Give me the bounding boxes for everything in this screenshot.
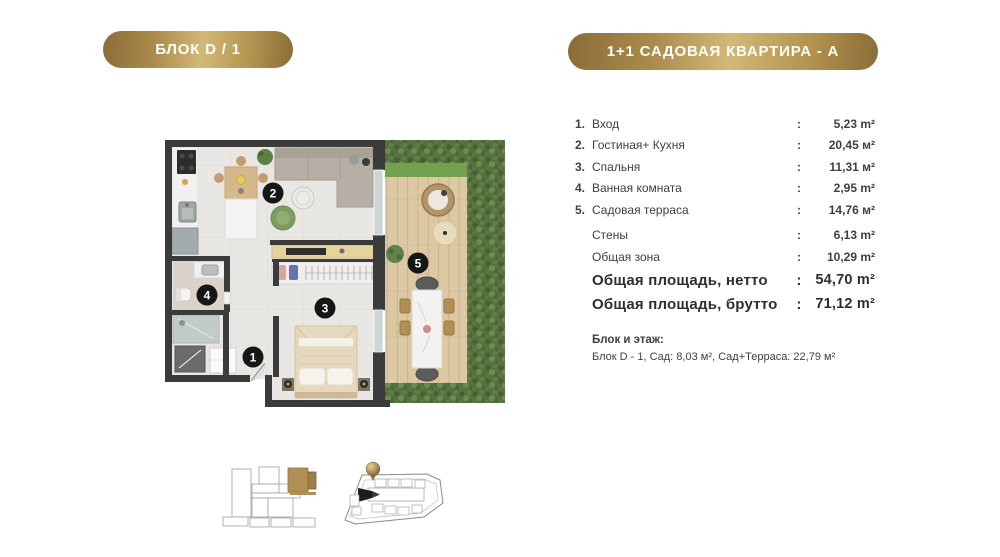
unit-number-badge-3: 3: [315, 298, 336, 319]
bed-sheet-fold: [299, 338, 353, 346]
badge-number: 2: [270, 186, 277, 200]
wall-interior-horizontal: [270, 240, 378, 245]
unit-outline: [252, 498, 268, 517]
sofa-back: [275, 148, 373, 158]
summary-value: 10,29 m²: [805, 250, 875, 264]
hedge-right: [467, 140, 505, 403]
room-number: 4.: [575, 181, 592, 195]
colon-separator: :: [793, 272, 805, 289]
block-floor-detail: Блок D - 1, Сад: 8,03 м², Сад+Терраса: 2…: [592, 351, 835, 363]
colon-separator: :: [793, 160, 805, 174]
badge-number: 5: [415, 256, 422, 270]
badge-number: 3: [322, 301, 329, 315]
coffee-table: [292, 187, 314, 209]
unit-outline: [250, 518, 269, 527]
unit-number-badge-5: 5: [408, 253, 429, 274]
colon-separator: :: [793, 181, 805, 195]
block-floor-info: Блок и этаж: Блок D - 1, Сад: 8,03 м², С…: [592, 334, 835, 363]
island-marble: [225, 199, 257, 239]
bathroom-door: [224, 292, 230, 304]
wall-entrance-bottom: [165, 375, 250, 382]
unit-number-badge-2: 2: [263, 183, 284, 204]
toilet-tank: [176, 288, 181, 301]
site-plan-diagram: [345, 462, 443, 524]
block-badge: БЛОК D / 1: [103, 31, 293, 68]
grass-strip: [385, 163, 467, 177]
hanging-clothes: [289, 265, 298, 280]
room-area-value: 5,23 m²: [805, 117, 875, 131]
room-label: Гостиная+ Кухня: [592, 138, 793, 152]
room-number: 5.: [575, 203, 592, 217]
summary-row-common-zone: Общая зона : 10,29 m²: [575, 246, 875, 268]
faucet: [185, 203, 189, 207]
sofa-item: [362, 158, 370, 166]
room-area-value: 14,76 м²: [805, 203, 875, 217]
apartment-type-badge: 1+1 САДОВАЯ КВАРТИРА - А: [568, 33, 878, 70]
block-badge-label: БЛОК D / 1: [155, 41, 241, 58]
burner: [180, 166, 185, 171]
island-chair: [236, 156, 246, 166]
headboard: [295, 392, 357, 398]
brochure-page: БЛОК D / 1 1+1 САДОВАЯ КВАРТИРА - А 1. В…: [0, 0, 1000, 557]
room-row: 5. Садовая терраса : 14,76 м²: [575, 199, 875, 221]
room-area-list: 1. Вход : 5,23 m² 2. Гостиная+ Кухня : 2…: [575, 113, 875, 221]
apartment-type-label: 1+1 САДОВАЯ КВАРТИРА - А: [607, 43, 839, 60]
summary-value: 54,70 m²: [805, 272, 875, 288]
wall-right-bottom: [373, 352, 385, 407]
badge-number: 1: [250, 350, 257, 364]
wall-bathroom-bottom: [168, 310, 224, 315]
summary-row-walls: Стены : 6,13 m²: [575, 224, 875, 246]
indoor-plant: [257, 149, 273, 165]
wall-top: [165, 140, 385, 147]
summary-label: Общая площадь, нетто: [592, 272, 793, 289]
floor-plan: 1 2 3 4 5: [160, 130, 505, 420]
unit-number-badge-4: 4: [197, 285, 218, 306]
summary-label: Общая площадь, брутто: [592, 296, 793, 313]
terrace-glass-door: [374, 170, 383, 235]
sofa-pillow: [349, 155, 359, 165]
washbasin: [202, 265, 218, 275]
wall-right-top: [373, 140, 385, 170]
colon-separator: :: [793, 203, 805, 217]
console-decor: [340, 249, 345, 254]
badge-number: 4: [204, 288, 211, 302]
tv: [286, 248, 326, 255]
kettle: [182, 179, 188, 185]
unit-outline: [293, 518, 315, 527]
area-summary: Стены : 6,13 m² Общая зона : 10,29 m² Об…: [575, 224, 875, 316]
outdoor-chair: [400, 299, 410, 313]
wall-bedroom-left-upper: [273, 262, 279, 286]
colon-separator: :: [793, 228, 805, 242]
room-area-value: 2,95 m²: [805, 181, 875, 195]
terrace-plant: [386, 245, 404, 263]
locator-diagrams: [222, 455, 457, 545]
block-floor-diagram: [223, 467, 316, 527]
wall-bedroom-bottom: [268, 400, 390, 407]
unit-outline: [223, 517, 248, 526]
outdoor-chair: [444, 299, 454, 313]
room-label: Ванная комната: [592, 181, 793, 195]
room-row: 1. Вход : 5,23 m²: [575, 113, 875, 135]
highlighted-unit: [288, 468, 308, 492]
armchair-cushion: [276, 211, 290, 225]
outdoor-chair: [416, 277, 438, 291]
block-floor-title: Блок и этаж:: [592, 334, 835, 346]
room-row: 2. Гостиная+ Кухня : 20,45 м²: [575, 135, 875, 157]
lounge-chair-pillow: [441, 190, 447, 196]
unit-outline: [268, 498, 293, 517]
colon-separator: :: [793, 296, 805, 313]
side-table-decor: [443, 231, 447, 235]
bedroom-window: [374, 310, 383, 352]
island-chair: [214, 173, 224, 183]
pillow: [327, 368, 353, 385]
summary-value: 71,12 m²: [805, 296, 875, 312]
wall-right-mid: [373, 235, 385, 310]
summary-label: Общая зона: [592, 250, 793, 264]
island-chair: [258, 173, 268, 183]
hedge-bottom: [385, 383, 469, 403]
summary-row-net-area: Общая площадь, нетто : 54,70 m²: [575, 268, 875, 292]
summary-label: Стены: [592, 228, 793, 242]
room-label: Садовая терраса: [592, 203, 793, 217]
burner: [189, 154, 194, 159]
colon-separator: :: [793, 138, 805, 152]
plate: [237, 176, 246, 185]
burner: [180, 154, 185, 159]
lamp-glow: [363, 383, 366, 386]
room-number: 2.: [575, 138, 592, 152]
pillow: [299, 368, 325, 385]
unit-outline: [259, 467, 279, 484]
unit-number-badge-1: 1: [243, 347, 264, 368]
locator-diagrams-drawing: [222, 455, 457, 545]
shower-head: [179, 320, 185, 326]
lamp-glow: [287, 383, 290, 386]
cooktop: [177, 150, 196, 174]
room-garden-terrace: [385, 140, 505, 403]
burner: [189, 166, 194, 171]
island-decor: [238, 188, 244, 194]
unit-outline: [271, 518, 291, 527]
room-number: 3.: [575, 160, 592, 174]
plant-leaf: [389, 249, 394, 254]
outdoor-chair: [400, 321, 410, 335]
kitchen-counter: [172, 147, 198, 254]
bed: [295, 326, 357, 398]
unit-outline: [252, 484, 279, 493]
floor-plan-drawing: 1 2 3 4 5: [160, 130, 505, 420]
plant-leaf: [259, 152, 264, 157]
wall-bedroom-left-lower: [273, 316, 279, 377]
room-row: 4. Ванная комната : 2,95 m²: [575, 178, 875, 200]
room-label: Вход: [592, 117, 793, 131]
colon-separator: :: [793, 250, 805, 264]
summary-row-gross-area: Общая площадь, брутто : 71,12 m²: [575, 292, 875, 316]
plant-leaf: [397, 255, 402, 260]
location-marker: [366, 462, 380, 476]
summary-value: 6,13 m²: [805, 228, 875, 242]
wall-bathroom-top: [168, 256, 230, 261]
room-number: 1.: [575, 117, 592, 131]
highlighted-unit-strip: [290, 492, 316, 495]
wall-utility-right: [223, 310, 229, 375]
cabinet: [172, 228, 198, 254]
wall-under-console: [272, 259, 378, 262]
room-label: Спальня: [592, 160, 793, 174]
room-area-value: 20,45 м²: [805, 138, 875, 152]
colon-separator: :: [793, 117, 805, 131]
wall-bathroom-right-upper: [224, 256, 230, 292]
outdoor-chair: [416, 367, 438, 381]
highlighted-unit-balcony: [308, 472, 316, 489]
sink-basin: [182, 208, 193, 219]
unit-outline: [232, 469, 251, 517]
table-centerpiece: [423, 325, 431, 333]
room-row: 3. Спальня : 11,31 м²: [575, 156, 875, 178]
outdoor-chair: [444, 321, 454, 335]
room-area-value: 11,31 м²: [805, 160, 875, 174]
